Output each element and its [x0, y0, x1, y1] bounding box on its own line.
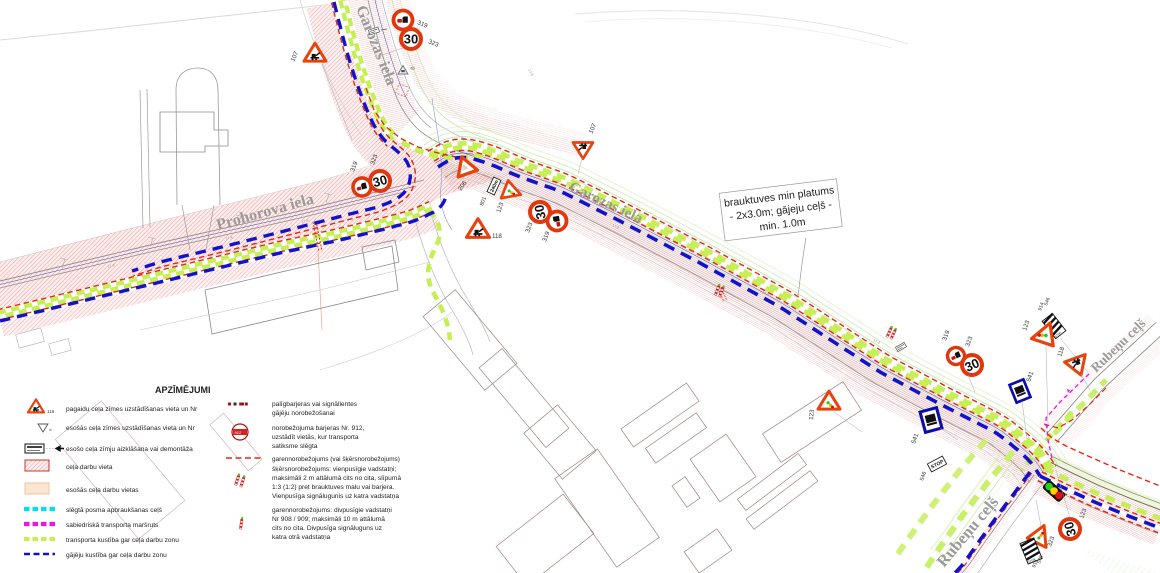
- svg-text:319: 319: [941, 329, 951, 342]
- svg-text:801: 801: [479, 196, 488, 207]
- svg-text:šķērsnorobežojums: vienpusīgie: šķērsnorobežojums: vienpusīgie vadstatņi…: [272, 466, 396, 473]
- svg-text:118: 118: [47, 409, 55, 414]
- svg-text:garennorobežojums: divpusīgie: garennorobežojums: divpusīgie vadstatņi: [272, 507, 392, 514]
- svg-text:m: m: [49, 428, 52, 432]
- svg-text:ceļa darbu vieta: ceļa darbu vieta: [66, 464, 113, 471]
- svg-text:norobežojuma barjeras Nr. 912,: norobežojuma barjeras Nr. 912,: [272, 425, 365, 432]
- svg-text:912: 912: [235, 430, 242, 435]
- svg-text:gājēju norobežošanai: gājēju norobežošanai: [272, 410, 335, 417]
- svg-text:uzstādīt vietās, kur transport: uzstādīt vietās, kur transporta: [272, 434, 359, 441]
- svg-text:123: 123: [1021, 319, 1031, 332]
- svg-text:319: 319: [541, 230, 551, 243]
- svg-text:107: 107: [587, 122, 598, 135]
- svg-text:541: 541: [910, 432, 920, 445]
- svg-text:123: 123: [495, 201, 505, 214]
- svg-text:123: 123: [808, 409, 816, 420]
- svg-text:323: 323: [964, 335, 974, 348]
- svg-text:esošo ceļa zīmju aizklāšana va: esošo ceļa zīmju aizklāšana vai demontāž…: [66, 446, 193, 453]
- svg-text:1:3 (1:2) pret brauktuves malu: 1:3 (1:2) pret brauktuves malu vai barje…: [272, 484, 395, 491]
- svg-text:323: 323: [1046, 535, 1056, 548]
- svg-text:17,8: 17,8: [873, 338, 881, 345]
- svg-text:sabiedriskā transporta maršrut: sabiedriskā transporta maršruts: [66, 522, 159, 529]
- svg-text:107: 107: [289, 50, 300, 63]
- svg-text:cits no cita. Divpusīga signāl: cits no cita. Divpusīga signāluguns uz: [272, 525, 382, 532]
- svg-text:118: 118: [492, 233, 502, 240]
- svg-text:pagaidu ceļa zīmes uzstādīšana: pagaidu ceļa zīmes uzstādīšanas vieta un…: [66, 406, 198, 413]
- svg-text:Nr 908 / 909; maksimāli 10 m a: Nr 908 / 909; maksimāli 10 m attālumā: [272, 516, 385, 523]
- svg-text:546: 546: [1043, 297, 1052, 307]
- svg-text:30: 30: [404, 32, 418, 47]
- svg-text:17,8: 17,8: [527, 69, 534, 77]
- svg-text:esošās ceļa zīmes uzstādīšanas: esošās ceļa zīmes uzstādīšanas vieta un …: [66, 425, 195, 432]
- svg-text:118: 118: [1056, 345, 1066, 357]
- svg-text:541: 541: [1025, 370, 1035, 383]
- svg-text:garennorobežojums (vai šķērsno: garennorobežojums (vai šķērsnorobežojums…: [272, 456, 400, 463]
- svg-text:APZĪMĒJUMI: APZĪMĒJUMI: [155, 385, 211, 395]
- svg-text:katra otrā vadstatņa: katra otrā vadstatņa: [272, 534, 331, 541]
- svg-text:satiksme slēgta: satiksme slēgta: [272, 443, 318, 450]
- svg-text:gājēju kustība gar ceļa darbu: gājēju kustība gar ceļa darbu zonu: [66, 552, 167, 559]
- svg-text:546: 546: [919, 471, 928, 482]
- svg-text:maksimāli 2 m attālumā cits no: maksimāli 2 m attālumā cits no cita, slī…: [272, 475, 401, 482]
- svg-text:palīgbarjeras vai signāllentes: palīgbarjeras vai signāllentes: [272, 401, 358, 408]
- svg-text:slēgtā posma apbraukšanas ceļš: slēgtā posma apbraukšanas ceļš: [66, 507, 163, 514]
- svg-text:esošās ceļa darbu vietas: esošās ceļa darbu vietas: [66, 487, 139, 494]
- svg-text:323: 323: [427, 38, 440, 49]
- svg-text:transporta kustība gar ceļa da: transporta kustība gar ceļa darbu zonu: [66, 537, 179, 544]
- svg-text:Vienpusīga signālugunis uz kat: Vienpusīga signālugunis uz katra vadstat…: [272, 493, 399, 500]
- svg-text:323: 323: [524, 221, 534, 234]
